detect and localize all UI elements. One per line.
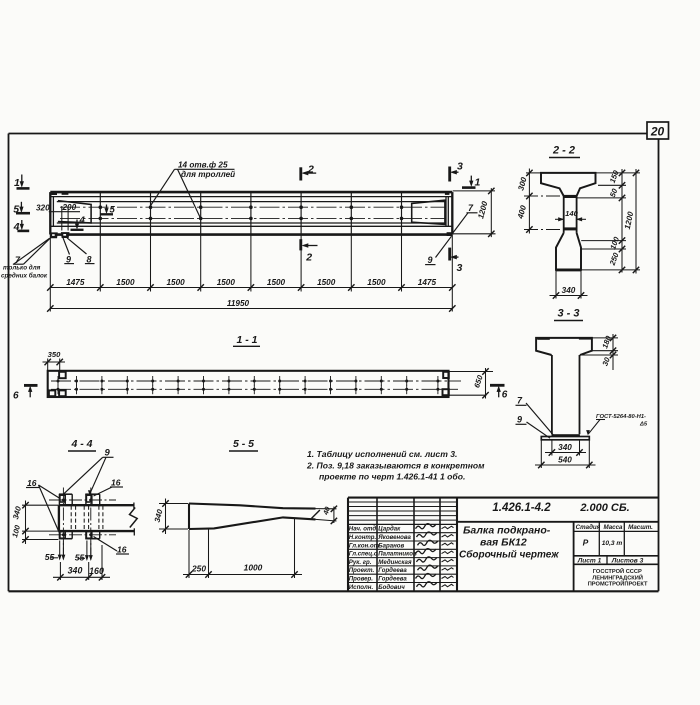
svg-text:2. Поз. 9,18 заказываются в ко: 2. Поз. 9,18 заказываются в конкретном	[306, 460, 485, 470]
svg-text:ГОССТРОЙ СССР: ГОССТРОЙ СССР	[593, 567, 642, 575]
svg-text:Рук. гр.: Рук. гр.	[349, 559, 372, 566]
svg-text:2 - 2: 2 - 2	[552, 145, 575, 157]
svg-text:проекте по черт 1.426.1-41 1 о: проекте по черт 1.426.1-41 1 обо.	[319, 471, 465, 481]
svg-text:ПРОМСТРОЙПРОЕКТ: ПРОМСТРОЙПРОЕКТ	[588, 580, 648, 588]
svg-text:Δ5: Δ5	[639, 422, 648, 428]
svg-text:2: 2	[305, 251, 312, 263]
svg-text:1 - 1: 1 - 1	[236, 334, 257, 346]
svg-text:1500: 1500	[267, 278, 286, 287]
svg-text:Цардак: Цардак	[378, 526, 401, 533]
svg-text:200: 200	[62, 203, 77, 212]
svg-text:340: 340	[558, 443, 572, 452]
svg-text:1475: 1475	[66, 278, 85, 287]
svg-text:9: 9	[428, 255, 433, 265]
svg-text:Гл.спец.о: Гл.спец.о	[349, 551, 378, 558]
svg-text:1500: 1500	[217, 278, 236, 287]
svg-text:9: 9	[517, 415, 522, 425]
svg-text:55: 55	[45, 552, 55, 562]
svg-text:1475: 1475	[418, 278, 437, 287]
svg-text:1.426.1-4.2: 1.426.1-4.2	[492, 502, 551, 514]
svg-text:вая БК12: вая БК12	[480, 537, 527, 549]
svg-text:6: 6	[502, 389, 508, 400]
svg-text:340: 340	[562, 286, 576, 295]
svg-text:1500: 1500	[367, 278, 386, 287]
svg-text:4 - 4: 4 - 4	[70, 438, 92, 450]
svg-text:Гордеева: Гордеева	[378, 576, 407, 583]
svg-text:Листов 3: Листов 3	[611, 557, 644, 564]
svg-text:14 отв.ф 25: 14 отв.ф 25	[178, 161, 228, 170]
svg-text:1500: 1500	[317, 278, 336, 287]
svg-text:340: 340	[68, 565, 83, 575]
svg-text:Балка подкрано-: Балка подкрано-	[463, 525, 551, 537]
svg-text:8: 8	[87, 254, 92, 264]
svg-text:Нач. отд: Нач. отд	[349, 526, 377, 533]
svg-text:Проект.: Проект.	[349, 567, 375, 574]
svg-text:1500: 1500	[116, 278, 135, 287]
svg-text:2.000 СБ.: 2.000 СБ.	[579, 502, 629, 514]
svg-text:Сборочный чертеж: Сборочный чертеж	[459, 549, 559, 561]
svg-text:10,3 т: 10,3 т	[602, 540, 623, 547]
svg-text:Р: Р	[583, 538, 589, 548]
svg-text:только для: только для	[3, 264, 41, 272]
svg-text:4: 4	[79, 215, 86, 226]
svg-text:Лист 1: Лист 1	[577, 558, 602, 565]
svg-text:250: 250	[191, 563, 206, 573]
svg-text:16: 16	[117, 545, 127, 555]
svg-text:Бодович: Бодович	[378, 584, 405, 591]
svg-text:Провер.: Провер.	[349, 576, 373, 583]
svg-text:6: 6	[13, 391, 19, 402]
svg-text:Палатников: Палатников	[378, 551, 417, 558]
svg-text:Стадия: Стадия	[576, 524, 601, 531]
svg-text:1000: 1000	[244, 563, 263, 573]
svg-text:350: 350	[48, 350, 61, 359]
svg-text:средних балок: средних балок	[1, 272, 48, 280]
svg-text:Масшт.: Масшт.	[628, 524, 653, 531]
svg-text:Гордеева: Гордеева	[378, 567, 407, 574]
svg-text:320: 320	[36, 204, 50, 213]
svg-text:Н.контр.: Н.контр.	[349, 534, 377, 541]
svg-text:Яковенова: Яковенова	[377, 534, 411, 541]
svg-text:160: 160	[89, 566, 104, 576]
svg-text:3: 3	[457, 160, 463, 172]
svg-text:11950: 11950	[227, 299, 250, 308]
svg-text:140: 140	[565, 209, 578, 218]
svg-text:Мединская: Мединская	[378, 559, 412, 566]
svg-text:для троллей: для троллей	[181, 170, 235, 179]
svg-text:Масса: Масса	[604, 524, 624, 531]
svg-text:3 - 3: 3 - 3	[557, 308, 579, 320]
svg-text:20: 20	[650, 125, 665, 139]
svg-text:3: 3	[457, 262, 463, 274]
svg-text:Баранов: Баранов	[378, 542, 404, 549]
svg-text:Гл.кон.от: Гл.кон.от	[349, 542, 380, 549]
svg-text:16: 16	[27, 478, 37, 488]
svg-text:Исполн.: Исполн.	[349, 584, 374, 591]
svg-text:9: 9	[66, 254, 71, 264]
svg-text:540: 540	[558, 456, 572, 465]
svg-text:1. Таблицу исполнений см. лис: 1. Таблицу исполнений см. лист 3.	[307, 449, 457, 459]
svg-text:16: 16	[111, 478, 121, 488]
svg-text:ЛЕНИНГРАДСКИЙ: ЛЕНИНГРАДСКИЙ	[592, 573, 643, 581]
svg-text:1500: 1500	[166, 278, 185, 287]
svg-text:5 - 5: 5 - 5	[233, 438, 254, 450]
svg-text:55: 55	[75, 552, 85, 562]
